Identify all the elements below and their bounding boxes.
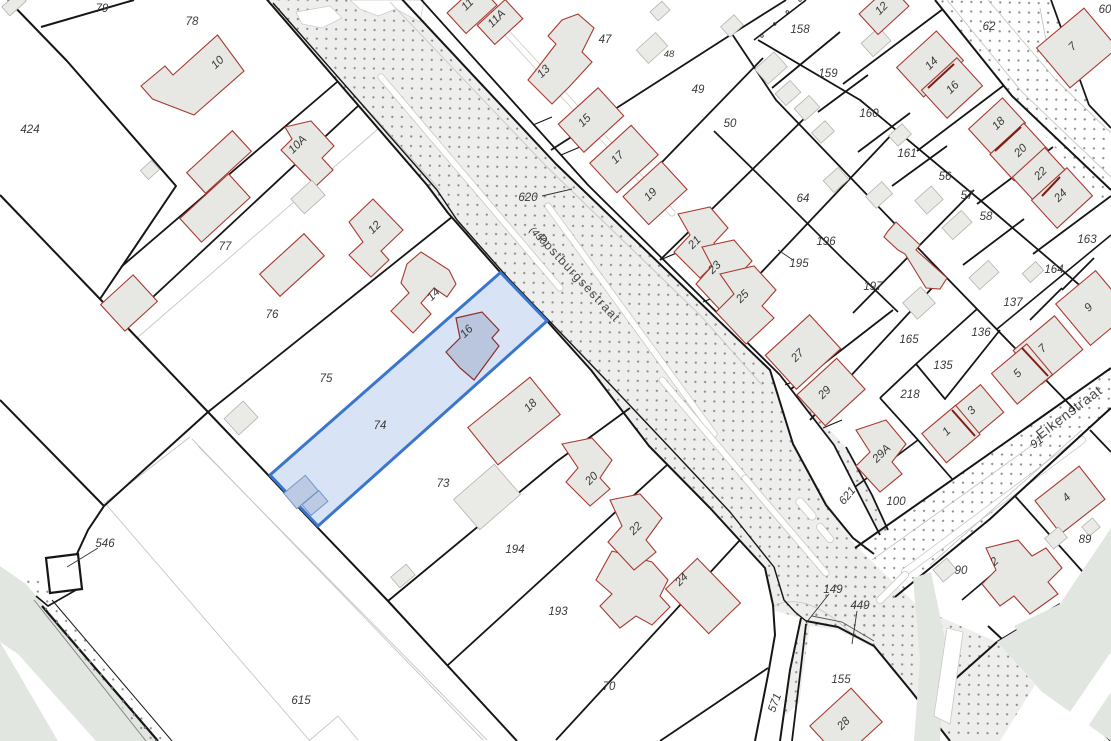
svg-text:424: 424 [20, 124, 39, 136]
svg-text:73: 73 [437, 478, 450, 490]
svg-text:60: 60 [1099, 4, 1111, 16]
svg-text:159: 159 [818, 68, 838, 80]
svg-text:160: 160 [859, 108, 879, 120]
svg-text:615: 615 [291, 695, 311, 707]
svg-text:70: 70 [603, 681, 616, 693]
svg-text:149: 149 [823, 584, 843, 596]
svg-text:194: 194 [505, 544, 524, 556]
svg-text:620: 620 [518, 192, 538, 204]
svg-text:75: 75 [320, 373, 333, 385]
svg-text:48: 48 [664, 49, 675, 60]
svg-text:165: 165 [899, 334, 919, 346]
svg-text:218: 218 [899, 389, 920, 401]
svg-text:62: 62 [983, 21, 996, 33]
svg-text:64: 64 [797, 193, 810, 205]
svg-text:195: 195 [789, 258, 809, 270]
svg-text:47: 47 [599, 34, 612, 46]
svg-text:77: 77 [219, 241, 232, 253]
svg-text:193: 193 [548, 606, 568, 618]
svg-text:546: 546 [95, 538, 115, 550]
svg-text:137: 137 [1003, 297, 1023, 309]
svg-text:135: 135 [933, 360, 953, 372]
svg-text:136: 136 [971, 327, 991, 339]
svg-text:449: 449 [850, 600, 870, 612]
svg-text:90: 90 [955, 565, 968, 577]
svg-text:50: 50 [724, 118, 737, 130]
svg-text:164: 164 [1044, 264, 1063, 276]
svg-text:74: 74 [374, 420, 387, 432]
svg-text:57: 57 [961, 190, 974, 202]
svg-text:163: 163 [1077, 234, 1097, 246]
svg-text:78: 78 [186, 16, 199, 28]
svg-text:158: 158 [790, 24, 810, 36]
svg-text:49: 49 [692, 84, 705, 96]
svg-text:56: 56 [939, 171, 952, 183]
svg-text:100: 100 [886, 496, 906, 508]
svg-text:58: 58 [980, 211, 993, 223]
svg-text:89: 89 [1079, 534, 1092, 546]
svg-text:155: 155 [831, 674, 851, 686]
svg-text:196: 196 [816, 236, 836, 248]
svg-text:161: 161 [897, 148, 916, 160]
svg-text:76: 76 [266, 309, 279, 321]
svg-text:79: 79 [96, 3, 109, 15]
svg-text:197: 197 [863, 281, 883, 293]
